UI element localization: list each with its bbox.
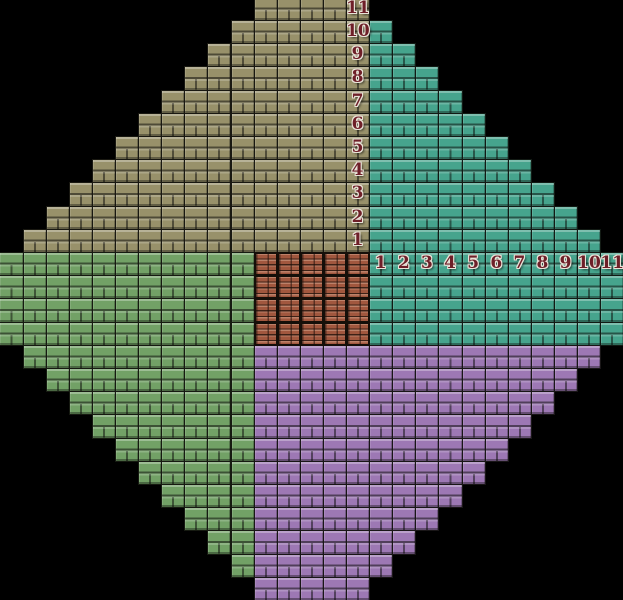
tile-purple <box>346 368 370 392</box>
tile-purple <box>254 530 278 554</box>
tile-purple <box>300 391 324 415</box>
tile-green <box>184 438 208 462</box>
tile-olive <box>346 159 370 183</box>
tile-olive <box>231 90 255 114</box>
tile-teal <box>392 159 416 183</box>
tile-olive <box>138 136 162 160</box>
tile-olive <box>207 159 231 183</box>
tile-olive <box>92 182 116 206</box>
tile-purple <box>415 345 439 369</box>
tile-green <box>184 322 208 346</box>
tile-olive <box>184 66 208 90</box>
tile-green <box>92 391 116 415</box>
tile-olive <box>277 90 301 114</box>
tile-olive <box>207 206 231 230</box>
tile-green <box>184 507 208 531</box>
tile-green <box>231 345 255 369</box>
tile-green <box>92 252 116 276</box>
tile-purple <box>485 391 509 415</box>
tile-purple <box>254 577 278 600</box>
tile-green <box>115 368 139 392</box>
tile-brick <box>277 298 301 322</box>
tile-purple <box>508 345 532 369</box>
tile-olive <box>115 159 139 183</box>
tile-purple <box>415 484 439 508</box>
tile-green <box>184 252 208 276</box>
tile-purple <box>462 461 486 485</box>
tile-green <box>92 298 116 322</box>
tile-teal <box>462 113 486 137</box>
tile-olive <box>92 229 116 253</box>
tile-teal <box>415 322 439 346</box>
tile-olive <box>138 159 162 183</box>
tile-purple <box>323 438 347 462</box>
tile-green <box>138 368 162 392</box>
tile-teal <box>369 298 393 322</box>
tile-purple <box>300 414 324 438</box>
tile-purple <box>277 368 301 392</box>
tile-olive <box>323 0 347 21</box>
tile-olive <box>138 113 162 137</box>
tile-teal <box>369 159 393 183</box>
tile-green <box>184 345 208 369</box>
tile-olive <box>323 20 347 44</box>
tile-teal <box>554 229 578 253</box>
tile-green <box>207 275 231 299</box>
tile-olive <box>231 182 255 206</box>
tile-teal <box>577 252 601 276</box>
tile-olive <box>300 182 324 206</box>
tile-olive <box>231 206 255 230</box>
tile-purple <box>415 461 439 485</box>
tile-purple <box>438 438 462 462</box>
tile-purple <box>346 577 370 600</box>
tile-purple <box>254 484 278 508</box>
tile-green <box>138 322 162 346</box>
tile-purple <box>300 484 324 508</box>
tile-olive <box>46 206 70 230</box>
tile-purple <box>300 461 324 485</box>
tile-teal <box>600 322 623 346</box>
tile-purple <box>254 461 278 485</box>
tile-olive <box>277 159 301 183</box>
tile-purple <box>254 414 278 438</box>
tile-olive <box>69 206 93 230</box>
tile-green <box>184 461 208 485</box>
tile-olive <box>254 43 278 67</box>
tile-olive <box>207 229 231 253</box>
tile-green <box>231 414 255 438</box>
tile-green <box>138 252 162 276</box>
tile-teal <box>415 206 439 230</box>
tile-purple <box>392 507 416 531</box>
tile-olive <box>277 229 301 253</box>
tile-brick <box>277 275 301 299</box>
tile-purple <box>254 391 278 415</box>
tile-olive <box>231 159 255 183</box>
tile-teal <box>600 298 623 322</box>
tile-green <box>161 322 185 346</box>
tile-green <box>161 414 185 438</box>
tile-teal <box>438 322 462 346</box>
tile-green <box>184 414 208 438</box>
tile-purple <box>300 345 324 369</box>
tile-purple <box>254 554 278 578</box>
tile-teal <box>369 182 393 206</box>
tile-purple <box>300 554 324 578</box>
tile-purple <box>369 507 393 531</box>
tile-olive <box>277 136 301 160</box>
tile-olive <box>323 66 347 90</box>
tile-green <box>46 252 70 276</box>
tile-brick <box>300 275 324 299</box>
tile-teal <box>577 322 601 346</box>
tile-olive <box>277 182 301 206</box>
tile-green <box>161 391 185 415</box>
tile-olive <box>184 90 208 114</box>
tile-green <box>46 298 70 322</box>
tile-green <box>69 368 93 392</box>
tile-teal <box>438 159 462 183</box>
tile-olive <box>346 43 370 67</box>
tile-green <box>92 322 116 346</box>
tile-purple <box>346 484 370 508</box>
tile-purple <box>277 391 301 415</box>
tile-teal <box>577 298 601 322</box>
tile-purple <box>462 414 486 438</box>
tile-brick <box>254 252 278 276</box>
tile-olive <box>254 229 278 253</box>
tile-teal <box>508 206 532 230</box>
tile-purple <box>346 438 370 462</box>
tile-olive <box>300 20 324 44</box>
tile-olive <box>69 182 93 206</box>
tile-teal <box>415 229 439 253</box>
tile-olive <box>254 182 278 206</box>
tile-purple <box>277 507 301 531</box>
tile-teal <box>462 322 486 346</box>
tile-green <box>207 391 231 415</box>
tile-green <box>231 554 255 578</box>
tile-olive <box>300 66 324 90</box>
tile-green <box>69 391 93 415</box>
tile-olive <box>254 0 278 21</box>
tile-olive <box>138 229 162 253</box>
tile-brick <box>254 298 278 322</box>
tile-purple <box>300 507 324 531</box>
tile-green <box>231 484 255 508</box>
tile-teal <box>392 136 416 160</box>
tile-olive <box>161 136 185 160</box>
tile-green <box>115 438 139 462</box>
tile-green <box>138 391 162 415</box>
tile-purple <box>485 368 509 392</box>
tile-purple <box>254 345 278 369</box>
tile-teal <box>485 275 509 299</box>
tile-olive <box>346 229 370 253</box>
tile-olive <box>323 90 347 114</box>
tile-olive <box>254 90 278 114</box>
tile-olive <box>161 182 185 206</box>
tile-purple <box>277 345 301 369</box>
tile-green <box>207 368 231 392</box>
tile-purple <box>369 554 393 578</box>
tile-purple <box>392 345 416 369</box>
tile-olive <box>207 136 231 160</box>
tile-purple <box>254 368 278 392</box>
tile-purple <box>438 414 462 438</box>
tile-purple <box>323 507 347 531</box>
tile-green <box>231 461 255 485</box>
tile-green <box>184 391 208 415</box>
tile-purple <box>369 391 393 415</box>
tile-green <box>138 414 162 438</box>
tile-teal <box>485 136 509 160</box>
tile-purple <box>346 461 370 485</box>
tile-purple <box>508 414 532 438</box>
tile-teal <box>392 182 416 206</box>
tile-purple <box>323 484 347 508</box>
tile-brick <box>300 322 324 346</box>
tile-teal <box>369 43 393 67</box>
tile-teal <box>438 275 462 299</box>
tile-purple <box>300 368 324 392</box>
tile-teal <box>415 113 439 137</box>
tile-green <box>69 345 93 369</box>
tile-teal <box>415 182 439 206</box>
tile-brick <box>300 252 324 276</box>
tile-olive <box>346 182 370 206</box>
tile-olive <box>92 206 116 230</box>
tile-purple <box>415 438 439 462</box>
tile-olive <box>207 43 231 67</box>
tile-teal <box>531 275 555 299</box>
tile-purple <box>254 438 278 462</box>
tile-teal <box>438 136 462 160</box>
tile-teal <box>462 182 486 206</box>
tile-purple <box>485 345 509 369</box>
tile-olive <box>277 206 301 230</box>
tile-purple <box>346 554 370 578</box>
tile-green <box>138 345 162 369</box>
tile-teal <box>531 206 555 230</box>
tile-purple <box>323 554 347 578</box>
tile-olive <box>207 66 231 90</box>
tile-olive <box>277 43 301 67</box>
tile-purple <box>254 507 278 531</box>
tile-olive <box>115 206 139 230</box>
tile-teal <box>392 322 416 346</box>
tile-purple <box>369 414 393 438</box>
tile-green <box>46 368 70 392</box>
tile-teal <box>485 298 509 322</box>
tile-olive <box>277 20 301 44</box>
tile-green <box>69 275 93 299</box>
tile-brick <box>323 252 347 276</box>
tile-green <box>161 345 185 369</box>
tile-brick <box>346 322 370 346</box>
tile-green <box>115 298 139 322</box>
tile-purple <box>300 438 324 462</box>
tile-brick <box>323 298 347 322</box>
tile-teal <box>554 252 578 276</box>
tile-teal <box>485 322 509 346</box>
tile-olive <box>300 113 324 137</box>
tile-teal <box>485 206 509 230</box>
tile-purple <box>369 368 393 392</box>
tile-olive <box>231 66 255 90</box>
tile-green <box>231 275 255 299</box>
tile-teal <box>392 298 416 322</box>
tile-teal <box>438 206 462 230</box>
tile-green <box>23 252 47 276</box>
tile-olive <box>161 90 185 114</box>
tile-olive <box>254 66 278 90</box>
tile-olive <box>323 229 347 253</box>
tile-teal <box>485 159 509 183</box>
tile-olive <box>346 90 370 114</box>
tile-teal <box>438 113 462 137</box>
tile-olive <box>231 136 255 160</box>
tile-teal <box>369 322 393 346</box>
tile-teal <box>369 113 393 137</box>
tile-purple <box>462 368 486 392</box>
tile-brick <box>277 322 301 346</box>
tile-olive <box>346 136 370 160</box>
tile-teal <box>508 182 532 206</box>
tile-green <box>161 484 185 508</box>
tile-brick <box>323 322 347 346</box>
tile-green <box>46 345 70 369</box>
tile-green <box>0 275 24 299</box>
tile-purple <box>369 438 393 462</box>
tile-olive <box>231 113 255 137</box>
tile-purple <box>462 345 486 369</box>
tile-green <box>138 438 162 462</box>
tile-olive <box>184 113 208 137</box>
tile-purple <box>300 577 324 600</box>
tile-purple <box>369 345 393 369</box>
tile-teal <box>415 159 439 183</box>
tile-olive <box>115 182 139 206</box>
tile-teal <box>369 136 393 160</box>
tile-green <box>231 298 255 322</box>
tile-purple <box>415 368 439 392</box>
tile-olive <box>346 0 370 21</box>
tile-teal <box>392 229 416 253</box>
tile-green <box>184 298 208 322</box>
tile-green <box>69 298 93 322</box>
tile-green <box>161 438 185 462</box>
tile-purple <box>438 484 462 508</box>
tile-olive <box>254 159 278 183</box>
tile-olive <box>161 206 185 230</box>
tile-brick <box>346 298 370 322</box>
tile-teal <box>369 20 393 44</box>
tile-brick <box>300 298 324 322</box>
tile-olive <box>207 182 231 206</box>
tile-purple <box>277 461 301 485</box>
tile-teal <box>462 298 486 322</box>
tile-olive <box>69 229 93 253</box>
tile-olive <box>46 229 70 253</box>
tile-purple <box>277 484 301 508</box>
tile-olive <box>300 229 324 253</box>
tile-green <box>115 275 139 299</box>
tile-olive <box>346 206 370 230</box>
tile-olive <box>346 20 370 44</box>
tile-purple <box>369 461 393 485</box>
tile-green <box>231 368 255 392</box>
tile-teal <box>508 229 532 253</box>
tile-green <box>138 298 162 322</box>
tile-teal <box>508 275 532 299</box>
tile-purple <box>346 391 370 415</box>
tile-olive <box>300 136 324 160</box>
tile-green <box>231 507 255 531</box>
tile-green <box>231 438 255 462</box>
tile-teal <box>415 136 439 160</box>
tile-olive <box>300 159 324 183</box>
tile-teal <box>392 66 416 90</box>
tile-olive <box>207 90 231 114</box>
tile-olive <box>161 159 185 183</box>
tile-teal <box>415 66 439 90</box>
tile-purple <box>277 438 301 462</box>
tile-teal <box>392 113 416 137</box>
tile-green <box>115 252 139 276</box>
tile-purple <box>415 414 439 438</box>
tile-olive <box>207 113 231 137</box>
tile-green <box>231 530 255 554</box>
tile-green <box>184 368 208 392</box>
tile-olive <box>254 20 278 44</box>
tile-teal <box>369 275 393 299</box>
tile-teal <box>531 229 555 253</box>
tile-purple <box>369 530 393 554</box>
tile-olive <box>23 229 47 253</box>
tile-purple <box>300 530 324 554</box>
tile-olive <box>346 113 370 137</box>
tile-teal <box>531 252 555 276</box>
tile-teal <box>485 182 509 206</box>
tile-brick <box>277 252 301 276</box>
tile-teal <box>438 90 462 114</box>
tile-olive <box>346 66 370 90</box>
tile-purple <box>462 438 486 462</box>
tile-purple <box>392 368 416 392</box>
tile-green <box>23 322 47 346</box>
tile-purple <box>415 507 439 531</box>
tile-olive <box>161 113 185 137</box>
tile-purple <box>369 484 393 508</box>
tile-teal <box>531 182 555 206</box>
tile-teal <box>600 275 623 299</box>
tile-green <box>161 368 185 392</box>
tile-purple <box>323 461 347 485</box>
tile-olive <box>161 229 185 253</box>
tile-olive <box>115 229 139 253</box>
tile-green <box>138 275 162 299</box>
tile-olive <box>254 113 278 137</box>
tile-green <box>23 275 47 299</box>
tile-olive <box>300 90 324 114</box>
tile-olive <box>231 229 255 253</box>
tile-teal <box>577 229 601 253</box>
tile-olive <box>323 206 347 230</box>
tile-olive <box>184 229 208 253</box>
tile-teal <box>554 206 578 230</box>
